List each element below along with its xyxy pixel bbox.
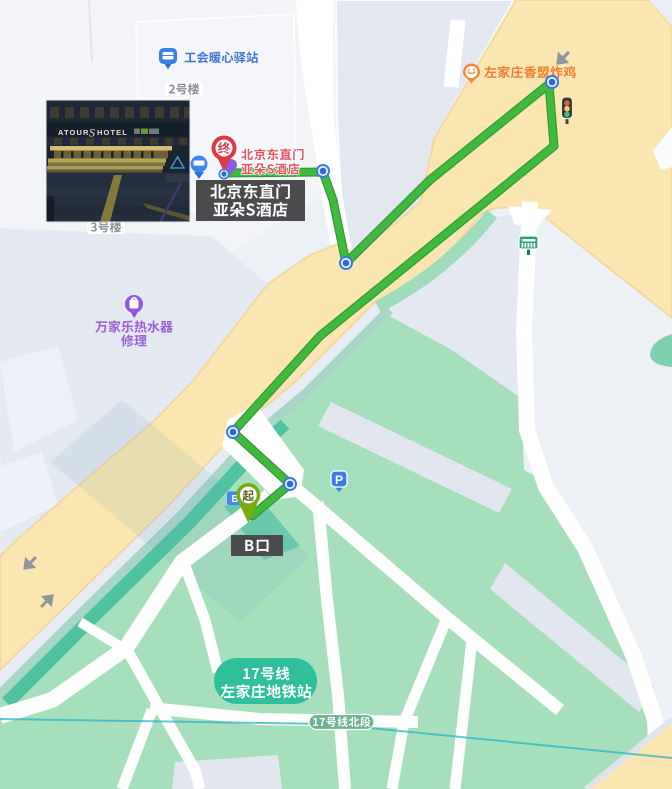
svg-text:HOTEL: HOTEL	[97, 128, 128, 137]
svg-text:P: P	[335, 473, 343, 487]
svg-text:ATOUR: ATOUR	[58, 128, 89, 137]
